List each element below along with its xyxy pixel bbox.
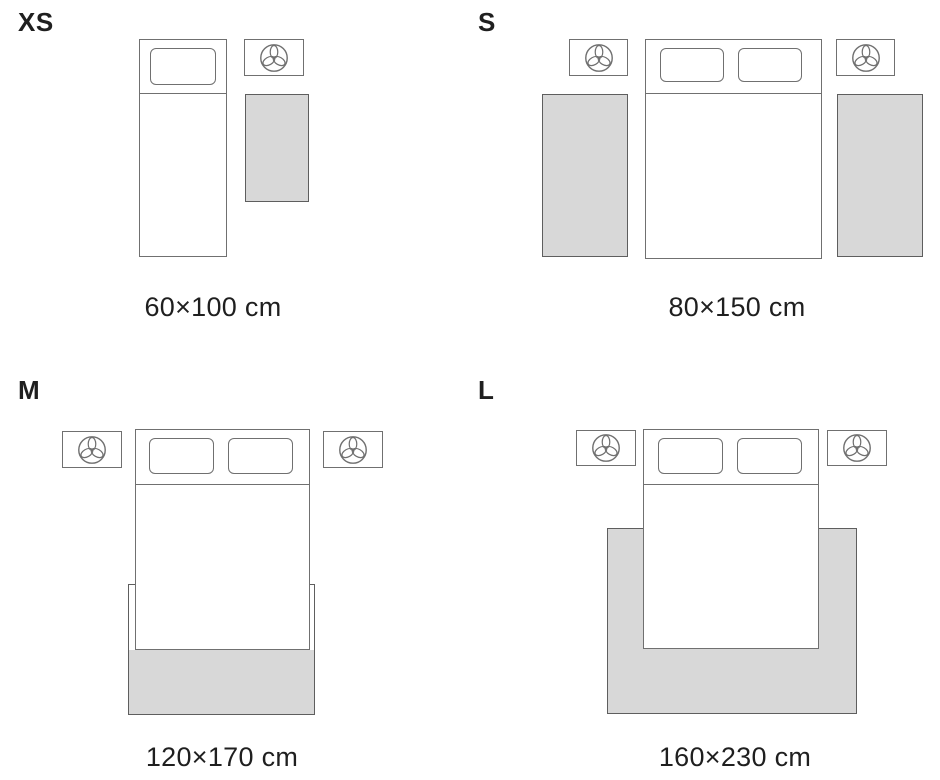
double-bed [645, 39, 822, 259]
size-label-l: L [478, 375, 494, 405]
pillow [149, 438, 214, 474]
size-label-xs: XS [18, 7, 54, 37]
nightstand [62, 431, 122, 468]
dimension-label-xs: 60×100 cm [63, 292, 363, 323]
rug [837, 94, 923, 257]
dimension-label-s: 80×150 cm [587, 292, 887, 323]
bed-headboard [646, 40, 821, 94]
pillow [737, 438, 802, 474]
lamp-icon [840, 431, 874, 465]
lamp-icon [75, 433, 109, 467]
bed-headboard [644, 430, 818, 485]
dimension-label-l: 160×230 cm [585, 742, 885, 773]
lamp-icon [336, 433, 370, 467]
pillow [738, 48, 802, 82]
pillow [150, 48, 216, 85]
double-bed [643, 429, 819, 649]
pillow [228, 438, 293, 474]
nightstand [569, 39, 628, 76]
lamp-icon [849, 41, 883, 75]
bed-headboard [140, 40, 226, 94]
nightstand [827, 430, 887, 466]
dimension-label-m: 120×170 cm [72, 742, 372, 773]
nightstand [323, 431, 383, 468]
rug [245, 94, 309, 202]
pillow [658, 438, 723, 474]
lamp-icon [582, 41, 616, 75]
double-bed [135, 429, 310, 650]
rug-size-guide-diagram: XS 60×100 cm S [0, 0, 940, 780]
lamp-icon [589, 431, 623, 465]
lamp-icon [257, 41, 291, 75]
single-bed [139, 39, 227, 257]
nightstand [244, 39, 304, 76]
rug [542, 94, 628, 257]
bed-headboard [136, 430, 309, 485]
rug-visible-area [129, 650, 314, 714]
size-label-m: M [18, 375, 40, 405]
pillow [660, 48, 724, 82]
nightstand [836, 39, 895, 76]
nightstand [576, 430, 636, 466]
size-label-s: S [478, 7, 496, 37]
